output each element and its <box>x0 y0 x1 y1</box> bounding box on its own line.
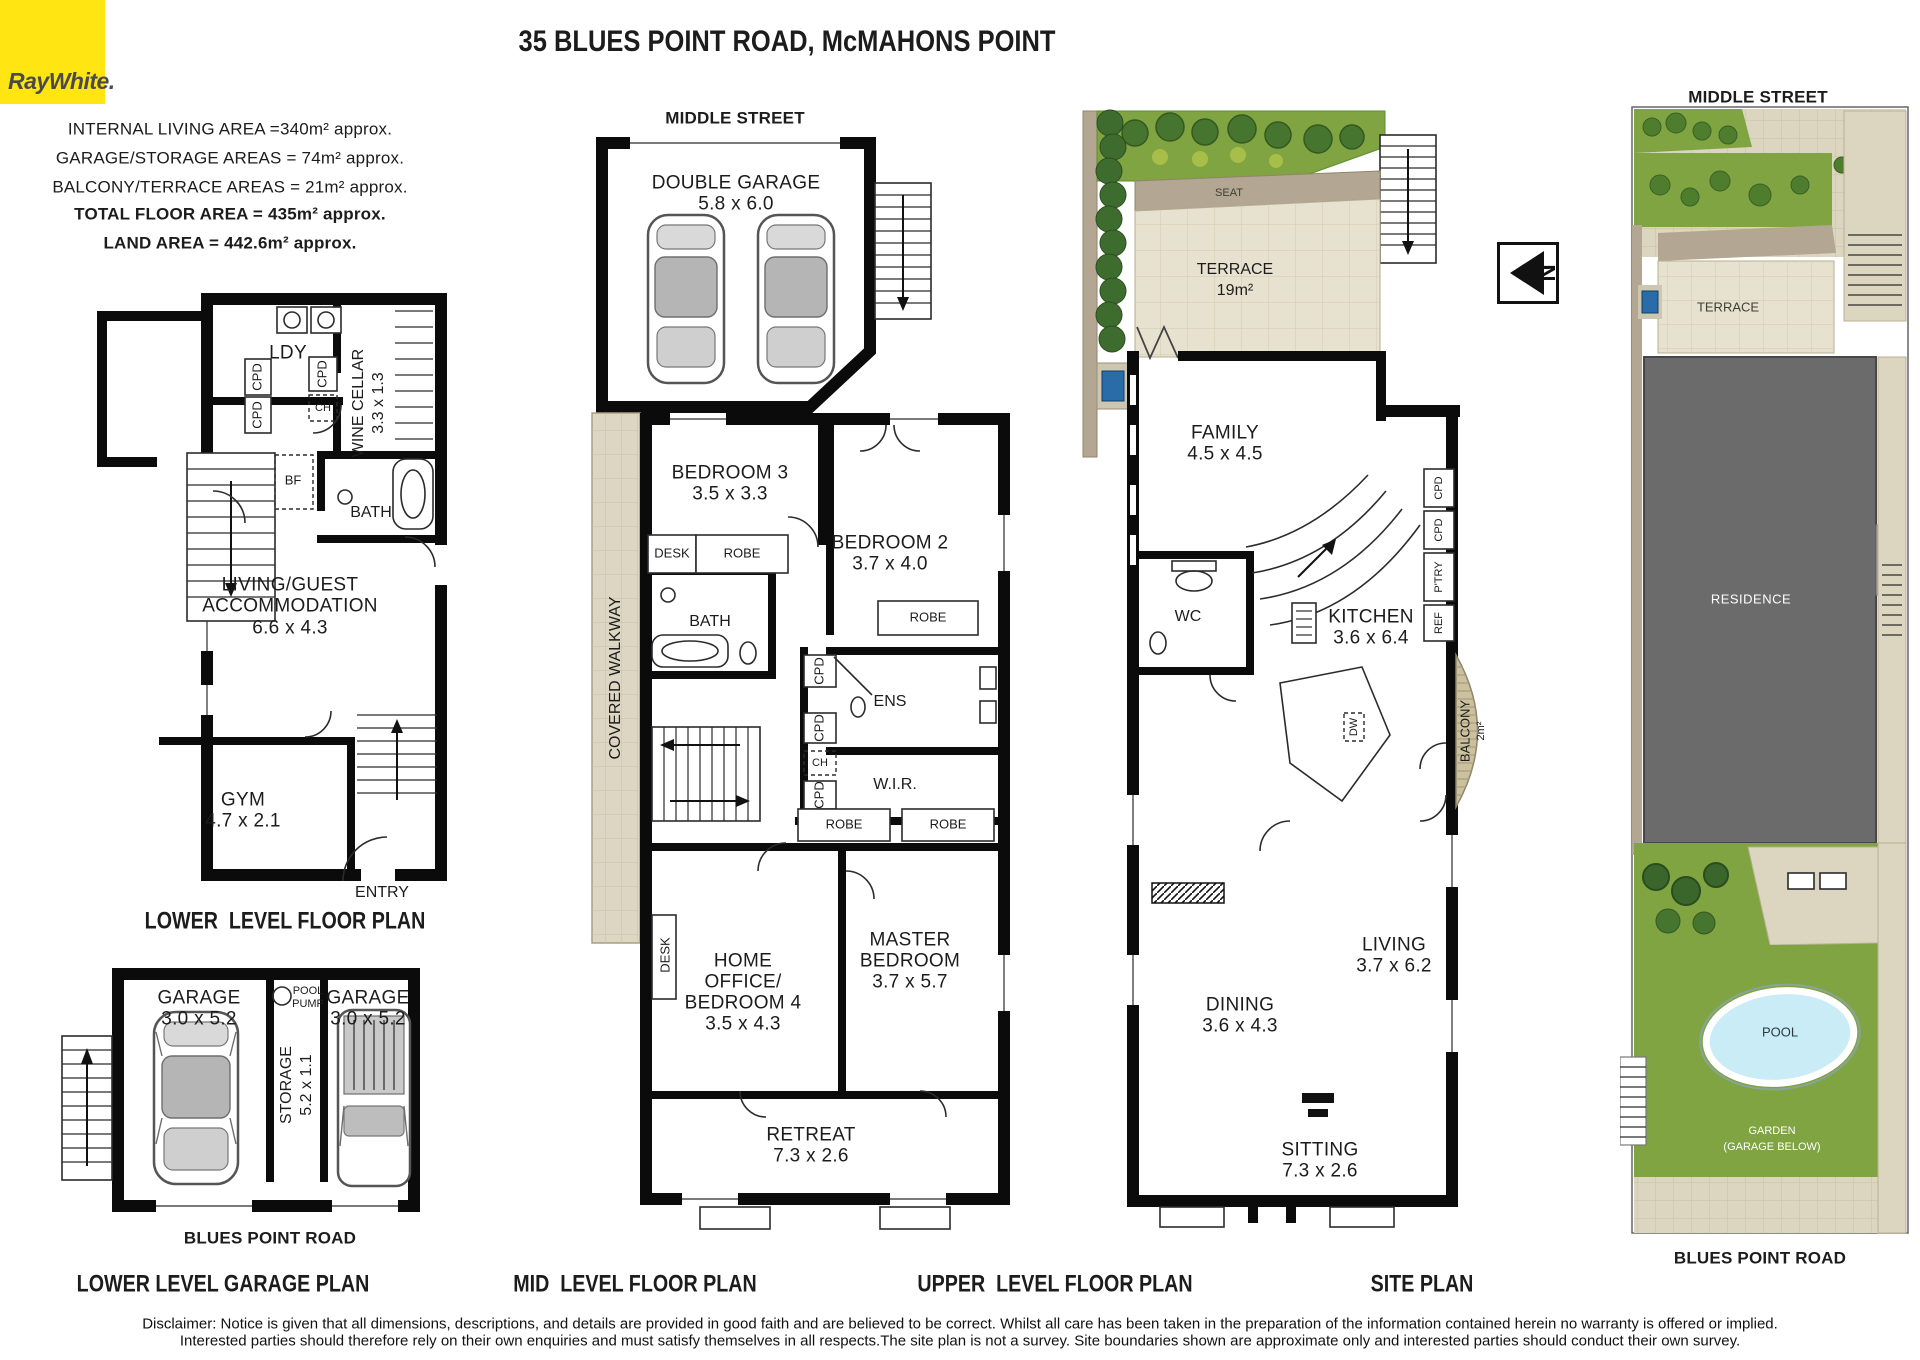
room-label-living: LIVING <box>1362 934 1426 955</box>
upper-level-drawing <box>1080 95 1500 1270</box>
page-title: 35 BLUES POINT ROAD, McMAHONS POINT <box>519 25 1056 59</box>
disclaimer-line-1: Disclaimer: Notice is given that all dim… <box>142 1317 1778 1334</box>
stat-internal-living: INTERNAL LIVING AREA =340m² approx. <box>68 119 392 138</box>
label-cpd: CPD <box>1433 518 1445 541</box>
label-entry: ENTRY <box>355 884 409 902</box>
room-label-home-office-2: OFFICE/ <box>704 971 781 992</box>
ensuite-fixture-icons <box>834 657 996 723</box>
caption-garage-plan: LOWER LEVEL GARAGE PLAN <box>77 1272 370 1299</box>
stat-garage-storage: GARAGE/STORAGE AREAS = 74m² approx. <box>56 148 404 167</box>
street-label-blues-point-road-site: BLUES POINT ROAD <box>1674 1248 1846 1267</box>
label-bf: BF <box>285 474 302 489</box>
caption-upper-level: UPPER LEVEL FLOOR PLAN <box>917 1272 1192 1299</box>
room-label-home-office-3: BEDROOM 4 <box>685 992 802 1013</box>
stair-icon <box>652 727 760 821</box>
room-dims-master: 3.7 x 5.7 <box>872 971 948 992</box>
north-compass: N <box>1497 242 1559 304</box>
label-ptry: P'TRY <box>1433 561 1445 592</box>
rear-patio <box>1748 847 1878 945</box>
label-pool-pump-1: POOL <box>293 985 324 997</box>
room-label-living-guest-1: LIVING/GUEST <box>222 574 359 595</box>
street-label-middle-street: MIDDLE STREET <box>665 108 805 127</box>
room-dims-sitting: 7.3 x 2.6 <box>1282 1160 1358 1181</box>
room-dims-storage: 5.2 x 1.1 <box>298 1054 316 1115</box>
room-dims-gym: 4.7 x 2.1 <box>205 810 281 831</box>
label-cpd: CPD <box>813 714 828 741</box>
bottom-paving <box>1634 1177 1878 1233</box>
compass-n: N <box>1534 264 1556 281</box>
car-icon <box>154 1012 238 1184</box>
label-cpd: CPD <box>813 657 828 684</box>
room-dims-garage-right: 3.0 x 5.2 <box>330 1008 406 1029</box>
room-dims-living-guest: 6.6 x 4.3 <box>252 617 328 638</box>
room-label-kitchen: KITCHEN <box>1328 606 1414 627</box>
label-dw: DW <box>1348 718 1360 736</box>
boundary-wall <box>1632 225 1642 855</box>
room-dims-family: 4.5 x 4.5 <box>1187 443 1263 464</box>
right-walkway-bottom <box>1878 843 1906 1233</box>
room-label-storage: STORAGE <box>278 1046 296 1124</box>
label-desk: DESK <box>654 547 689 562</box>
room-label-wc: WC <box>1175 608 1202 626</box>
room-label-master-1: MASTER <box>870 929 951 950</box>
room-dims-home-office: 3.5 x 4.3 <box>705 1013 781 1034</box>
porch-steps <box>700 1207 950 1229</box>
label-cpd: CPD <box>316 360 331 387</box>
label-ch: CH <box>315 402 331 414</box>
site-label-pool: POOL <box>1762 1026 1798 1041</box>
room-dims-retreat: 7.3 x 2.6 <box>773 1145 849 1166</box>
label-robe: ROBE <box>910 611 947 626</box>
label-robe: ROBE <box>826 818 863 833</box>
room-label-garage-right: GARAGE <box>326 987 409 1008</box>
raywhite-logo-text: RayWhite. <box>8 68 115 95</box>
stair-icon <box>1380 135 1436 263</box>
label-cpd: CPD <box>1433 476 1445 499</box>
site-label-garden-1: GARDEN <box>1748 1125 1795 1137</box>
label-desk: DESK <box>659 937 674 972</box>
room-label-terrace: TERRACE <box>1197 261 1273 279</box>
room-label-master-2: BEDROOM <box>860 950 960 971</box>
street-label-blues-point-road: BLUES POINT ROAD <box>184 1228 356 1247</box>
site-label-terrace: TERRACE <box>1697 301 1759 316</box>
room-label-wine-cellar: WINE CELLAR <box>350 349 368 457</box>
stair-icon <box>1620 1057 1646 1145</box>
street-label-middle-street-site: MIDDLE STREET <box>1688 87 1828 106</box>
stair-icon <box>875 183 931 319</box>
label-cpd: CPD <box>813 781 828 808</box>
car-icon <box>758 215 834 383</box>
label-covered-walkway: COVERED WALKWAY <box>607 597 625 760</box>
room-label-bedroom3: BEDROOM 3 <box>672 462 789 483</box>
right-walkway-mid <box>1878 357 1906 843</box>
room-label-gym: GYM <box>221 789 265 810</box>
room-dims-bedroom3: 3.5 x 3.3 <box>692 483 768 504</box>
ute-icon <box>338 1010 410 1186</box>
raywhite-logo: RayWhite. <box>0 0 105 104</box>
stair-icon <box>62 1036 112 1180</box>
room-dims-dining: 3.6 x 4.3 <box>1202 1015 1278 1036</box>
label-pool-pump-2: PUMP <box>292 998 324 1010</box>
room-label-living-guest-2: ACCOMMODATION <box>202 595 378 616</box>
room-label-sitting: SITTING <box>1281 1139 1358 1160</box>
room-label-ldy: LDY <box>269 342 307 363</box>
mid-level-floor-plan: MIDDLE STREET DOUBLE GARAGE 5.8 x 6.0 CO… <box>590 95 1010 1265</box>
site-plan: MIDDLE STREET TERRACE RESIDENCE POOL GAR… <box>1620 85 1915 1280</box>
mid-level-drawing <box>590 95 1010 1265</box>
room-label-retreat: RETREAT <box>766 1124 855 1145</box>
room-dims-wine-cellar: 3.3 x 1.3 <box>370 372 388 433</box>
caption-lower-level: LOWER LEVEL FLOOR PLAN <box>145 909 426 936</box>
label-robe: ROBE <box>930 818 967 833</box>
caption-site-plan: SITE PLAN <box>1371 1272 1474 1299</box>
north-arrow-icon: N <box>1500 245 1556 301</box>
dims-balcony: 2m² <box>1475 722 1487 741</box>
room-dims-double-garage: 5.8 x 6.0 <box>698 193 774 214</box>
room-dims-living: 3.7 x 6.2 <box>1356 955 1432 976</box>
label-ch: CH <box>812 757 828 769</box>
stat-total-floor: TOTAL FLOOR AREA = 435m² approx. <box>74 204 386 223</box>
right-walkway <box>1844 111 1906 321</box>
room-label-home-office-1: HOME <box>714 950 772 971</box>
label-ref: REF <box>1433 612 1445 634</box>
stat-land-area: LAND AREA = 442.6m² approx. <box>103 233 356 252</box>
room-label-bath: BATH <box>689 613 730 631</box>
room-label-wir: W.I.R. <box>873 776 917 794</box>
label-balcony: BALCONY <box>1459 700 1474 762</box>
car-icon <box>648 215 724 383</box>
site-label-residence: RESIDENCE <box>1711 593 1791 608</box>
floorplan-sheet: RayWhite. 35 BLUES POINT ROAD, McMAHONS … <box>0 0 1920 1360</box>
upper-level-floor-plan: SEAT TERRACE 19m² FAMILY 4.5 x 4.5 WC KI… <box>1080 95 1500 1270</box>
stat-balcony-terrace: BALCONY/TERRACE AREAS = 21m² approx. <box>52 177 407 196</box>
spa-icon <box>1642 291 1658 313</box>
room-dims-kitchen: 3.6 x 6.4 <box>1333 627 1409 648</box>
room-label-garage-left: GARAGE <box>157 987 240 1008</box>
room-dims-bedroom2: 3.7 x 4.0 <box>852 553 928 574</box>
site-plan-drawing <box>1620 85 1915 1280</box>
lower-level-floor-plan: LDY CPD CPD CPD CH WINE CELLAR 3.3 x 1.3… <box>95 285 450 915</box>
room-label-double-garage: DOUBLE GARAGE <box>652 172 821 193</box>
label-seat: SEAT <box>1215 187 1243 199</box>
spa-icon <box>1102 371 1124 401</box>
disclaimer-line-2: Interested parties should therefore rely… <box>180 1334 1740 1351</box>
label-cpd: CPD <box>251 363 266 390</box>
label-cpd: CPD <box>251 401 266 428</box>
room-dims-garage-left: 3.0 x 5.2 <box>161 1008 237 1029</box>
lower-level-garage-plan: GARAGE 3.0 x 5.2 GARAGE 3.0 x 5.2 POOL P… <box>60 960 425 1260</box>
room-dims-terrace: 19m² <box>1217 282 1253 300</box>
room-label-bedroom2: BEDROOM 2 <box>832 532 949 553</box>
room-label-bath: BATH <box>350 504 391 522</box>
boundary-wall <box>1083 111 1097 457</box>
site-label-garden-2: (GARAGE BELOW) <box>1723 1141 1820 1153</box>
room-label-ens: ENS <box>874 693 907 711</box>
room-label-dining: DINING <box>1206 994 1274 1015</box>
label-robe: ROBE <box>724 547 761 562</box>
caption-mid-level: MID LEVEL FLOOR PLAN <box>513 1272 756 1299</box>
hatch-bar-stripes <box>1152 883 1224 903</box>
room-label-family: FAMILY <box>1191 422 1259 443</box>
